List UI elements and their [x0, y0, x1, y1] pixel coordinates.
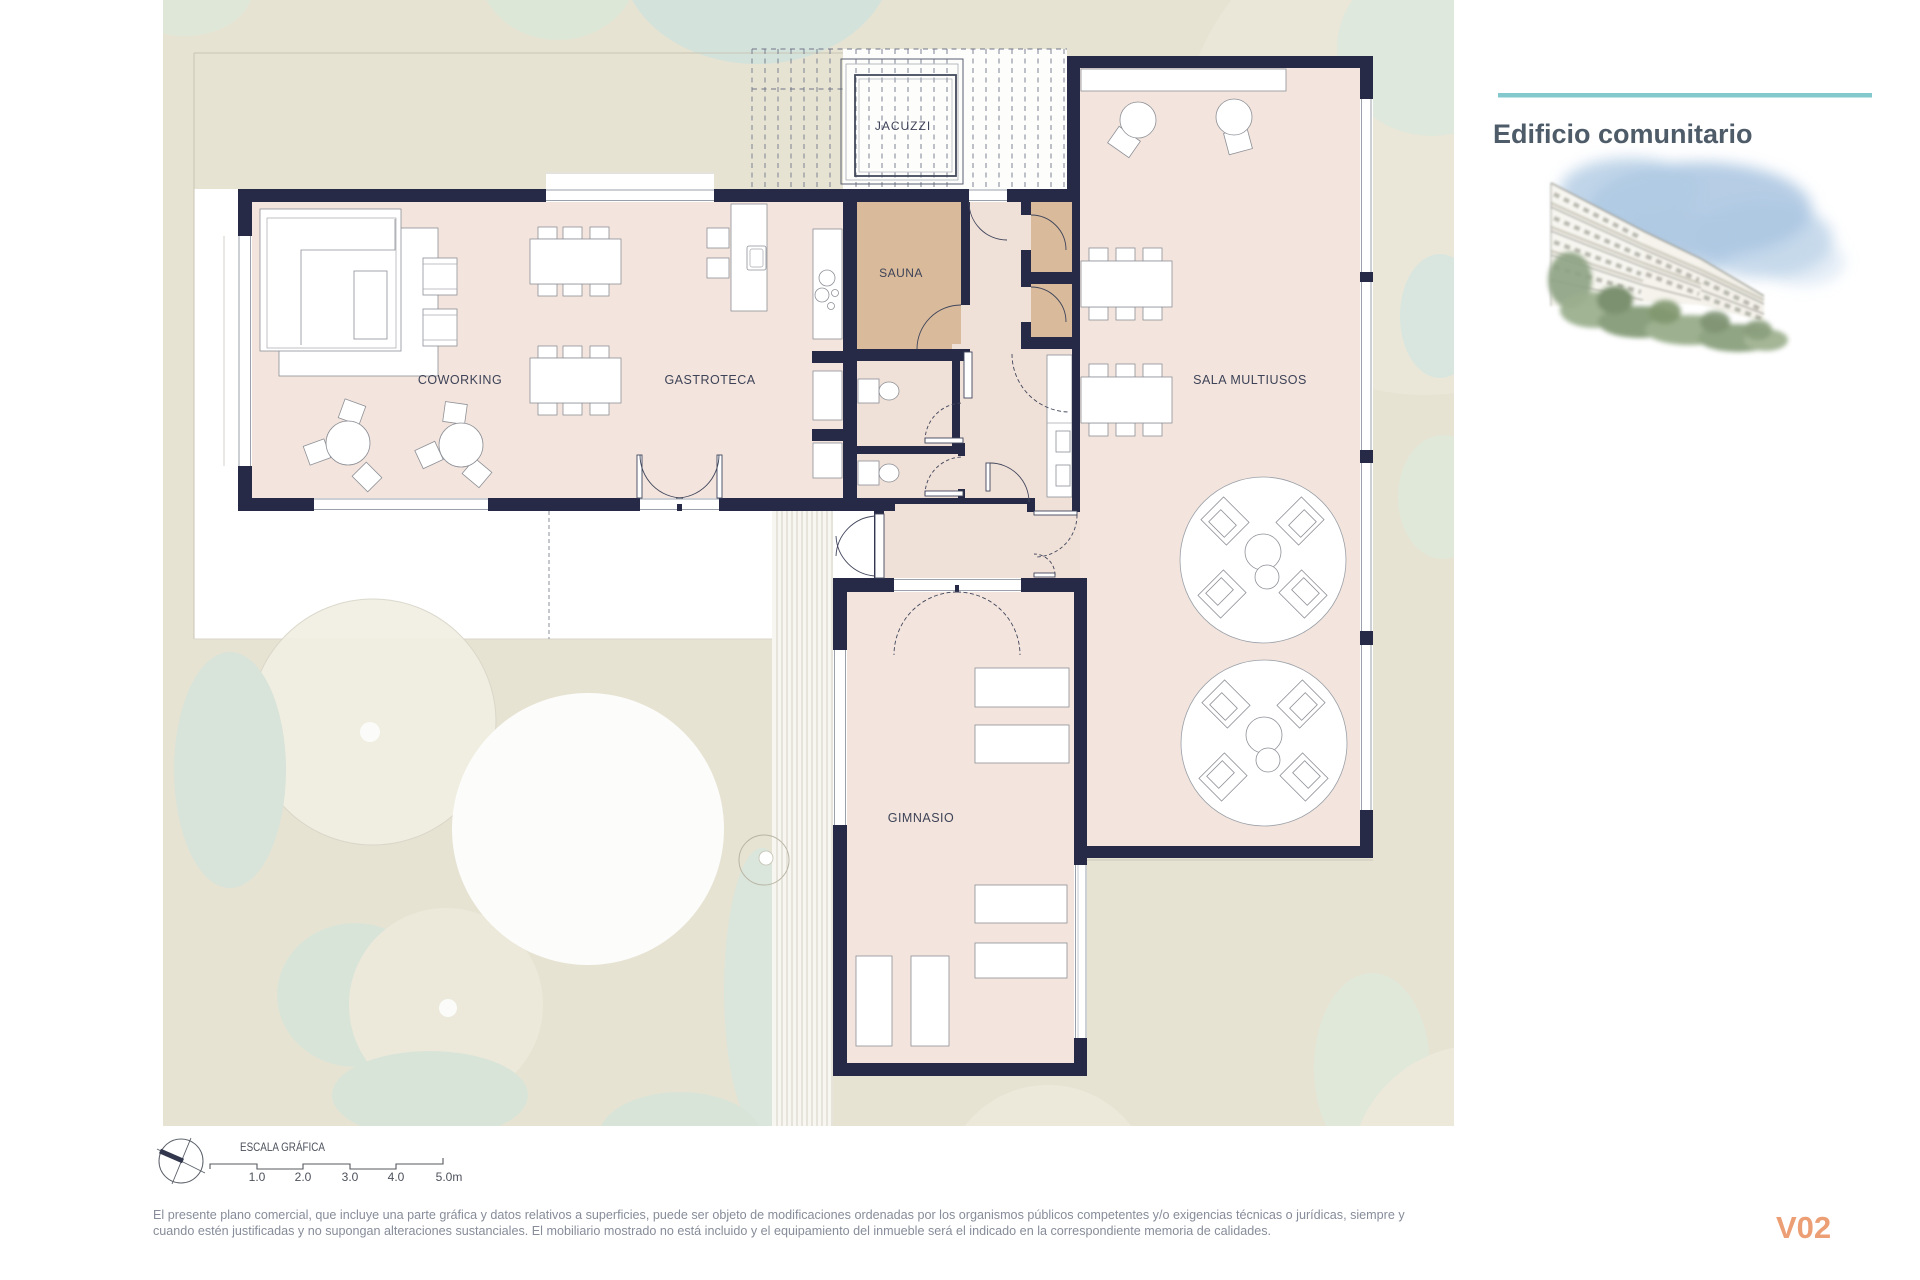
svg-text:GASTROTECA: GASTROTECA [664, 373, 755, 387]
svg-text:GIMNASIO: GIMNASIO [888, 811, 955, 825]
svg-text:COWORKING: COWORKING [418, 373, 502, 387]
svg-text:3.0: 3.0 [342, 1170, 359, 1184]
svg-text:5.0m: 5.0m [436, 1170, 463, 1184]
svg-text:1.0: 1.0 [249, 1170, 266, 1184]
svg-text:V02: V02 [1776, 1210, 1831, 1245]
svg-text:ESCALA GRÁFICA: ESCALA GRÁFICA [240, 1141, 325, 1154]
svg-text:4.0: 4.0 [388, 1170, 405, 1184]
svg-text:SALA MULTIUSOS: SALA MULTIUSOS [1193, 373, 1307, 387]
svg-text:El presente plano comercial, q: El presente plano comercial, que incluye… [153, 1208, 1405, 1222]
svg-text:cuando estén justificadas y no: cuando estén justificadas y no supongan … [153, 1224, 1271, 1238]
svg-text:JACUZZI: JACUZZI [875, 119, 931, 133]
svg-text:SAUNA: SAUNA [879, 266, 923, 280]
svg-text:2.0: 2.0 [295, 1170, 312, 1184]
svg-text:Edificio comunitario: Edificio comunitario [1493, 119, 1753, 149]
